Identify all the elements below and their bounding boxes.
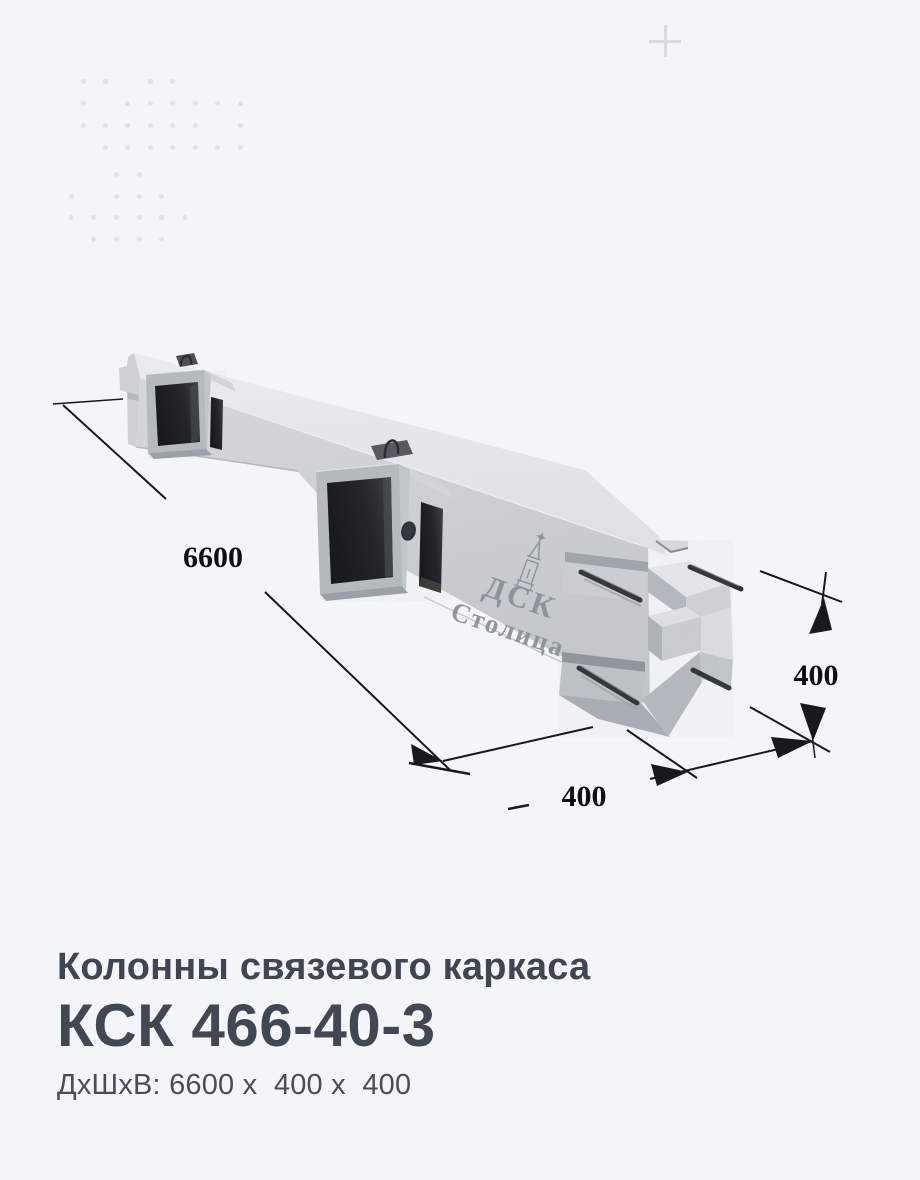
column-render: ДСК Столица: [60, 330, 760, 760]
product-category: Колонны связевого каркаса: [57, 946, 897, 990]
product-info: Колонны связевого каркаса КСК 466-40-3 Д…: [57, 946, 897, 1102]
dimension-width: [508, 730, 813, 809]
product-dimensions: ДхШхВ: 6600 х 400 х 400: [57, 1069, 897, 1102]
dimension-length-label: 6600: [183, 541, 243, 574]
page-background: ДСК Столица: [0, 0, 920, 1180]
dimension-width-label: 400: [562, 780, 607, 813]
dimension-height-label: 400: [794, 659, 839, 692]
product-code: КСК 466-40-3: [57, 992, 897, 1059]
